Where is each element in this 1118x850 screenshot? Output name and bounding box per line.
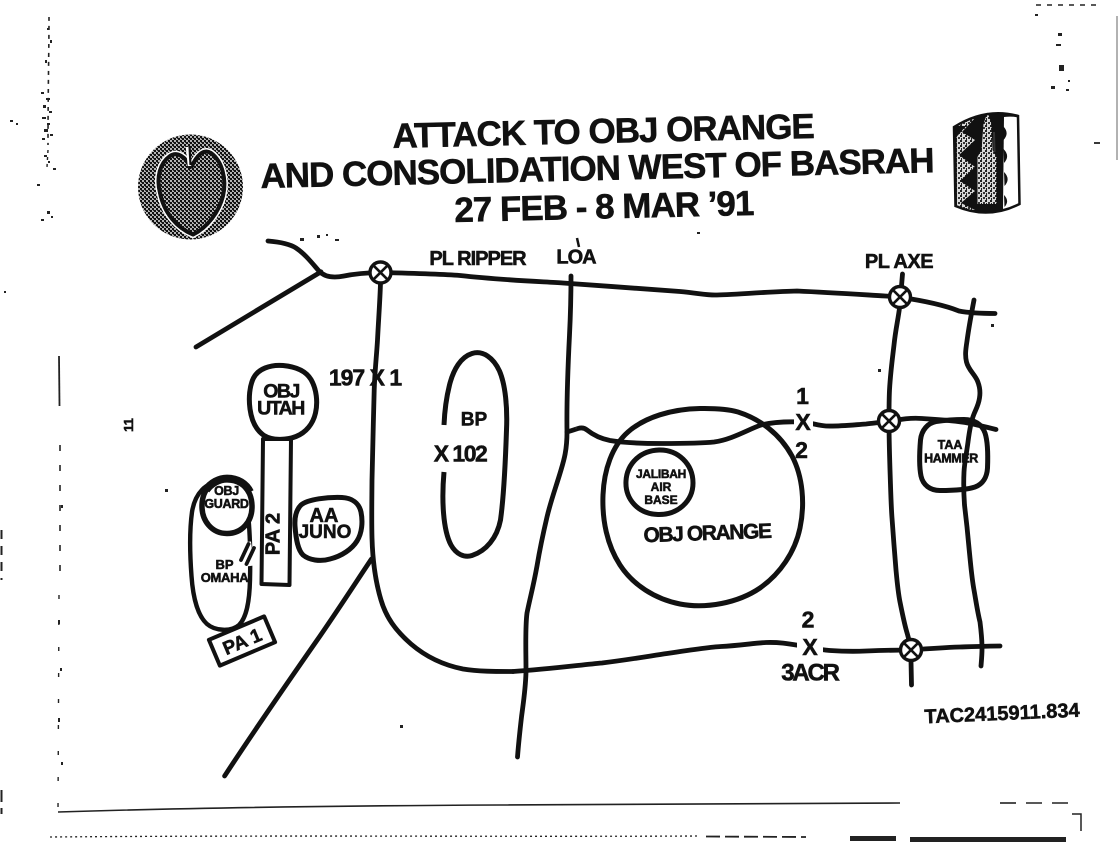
svg-text:JALIBAH: JALIBAH [636, 467, 686, 481]
svg-text:197 X 1: 197 X 1 [329, 365, 402, 391]
svg-text:UTAH: UTAH [257, 398, 304, 420]
svg-text:2: 2 [802, 607, 815, 633]
svg-text:PL RIPPER: PL RIPPER [429, 248, 527, 270]
svg-text:OBJ ORANGE: OBJ ORANGE [643, 520, 772, 547]
svg-text:2: 2 [795, 437, 808, 463]
svg-text:X: X [802, 634, 818, 660]
svg-text:OBJ: OBJ [214, 484, 239, 498]
svg-text:11: 11 [121, 418, 136, 432]
svg-text:27 FEB - 8 MAR ’91: 27 FEB - 8 MAR ’91 [454, 184, 754, 230]
svg-text:AIR: AIR [651, 480, 672, 494]
svg-text:1: 1 [796, 383, 809, 409]
svg-text:3ACR: 3ACR [781, 660, 839, 687]
svg-text:LOA: LOA [556, 247, 596, 269]
svg-text:TAA: TAA [938, 438, 963, 452]
svg-text:PL AXE: PL AXE [865, 251, 933, 273]
svg-text:GUARD: GUARD [204, 497, 249, 511]
svg-text:JUNO: JUNO [299, 522, 352, 543]
svg-text:X: X [795, 409, 811, 435]
svg-text:X 102: X 102 [434, 441, 487, 467]
svg-text:TAC2415911.834: TAC2415911.834 [924, 700, 1081, 729]
svg-text:HAMMER: HAMMER [924, 452, 978, 466]
svg-text:BASE: BASE [644, 493, 677, 507]
svg-text:OMAHA: OMAHA [201, 570, 250, 585]
svg-text:BP: BP [461, 410, 488, 431]
svg-text:PA 2: PA 2 [263, 513, 285, 555]
